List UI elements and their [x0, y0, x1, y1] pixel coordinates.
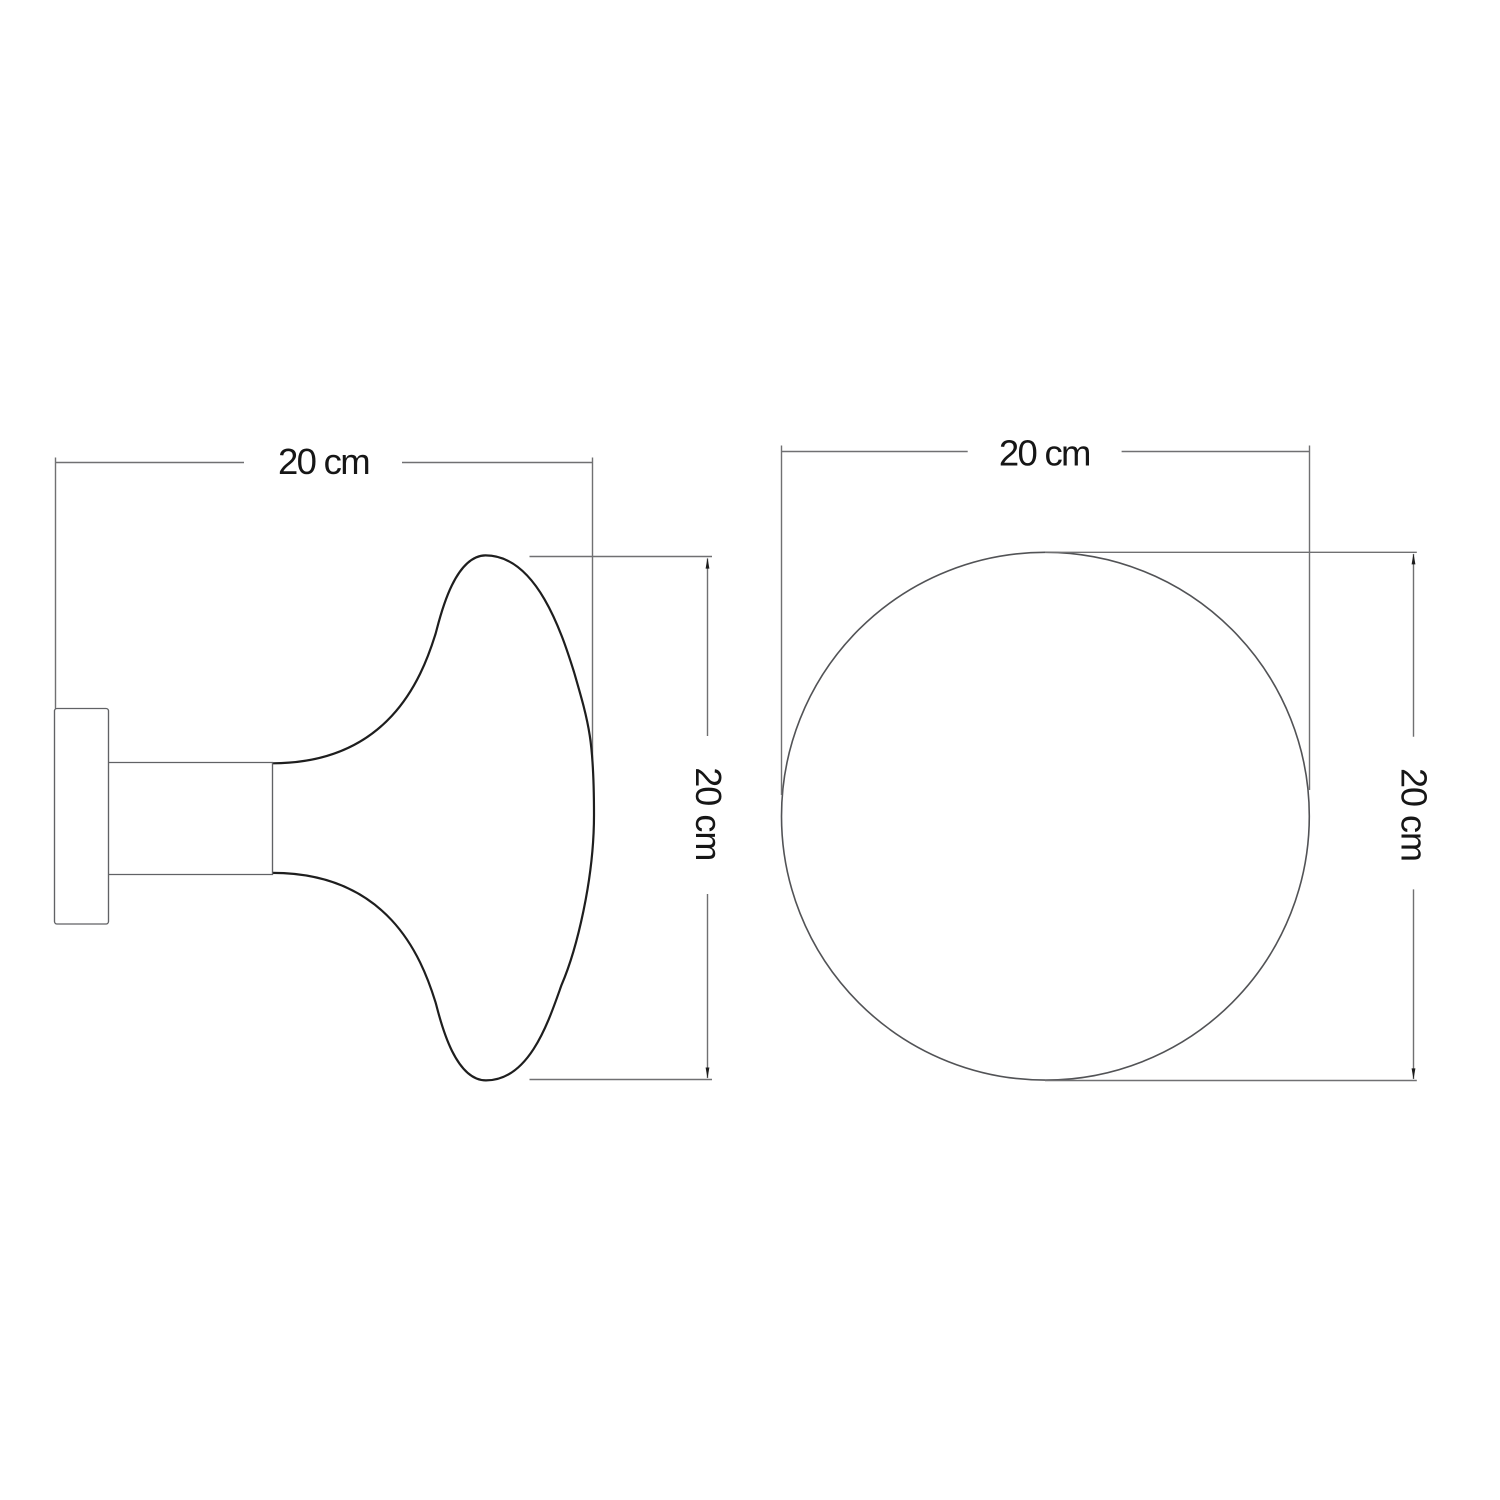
svg-text:20 cm: 20 cm	[688, 767, 729, 860]
svg-text:20 cm: 20 cm	[1394, 768, 1435, 861]
svg-text:20 cm: 20 cm	[999, 432, 1090, 473]
svg-text:20 cm: 20 cm	[278, 441, 369, 482]
